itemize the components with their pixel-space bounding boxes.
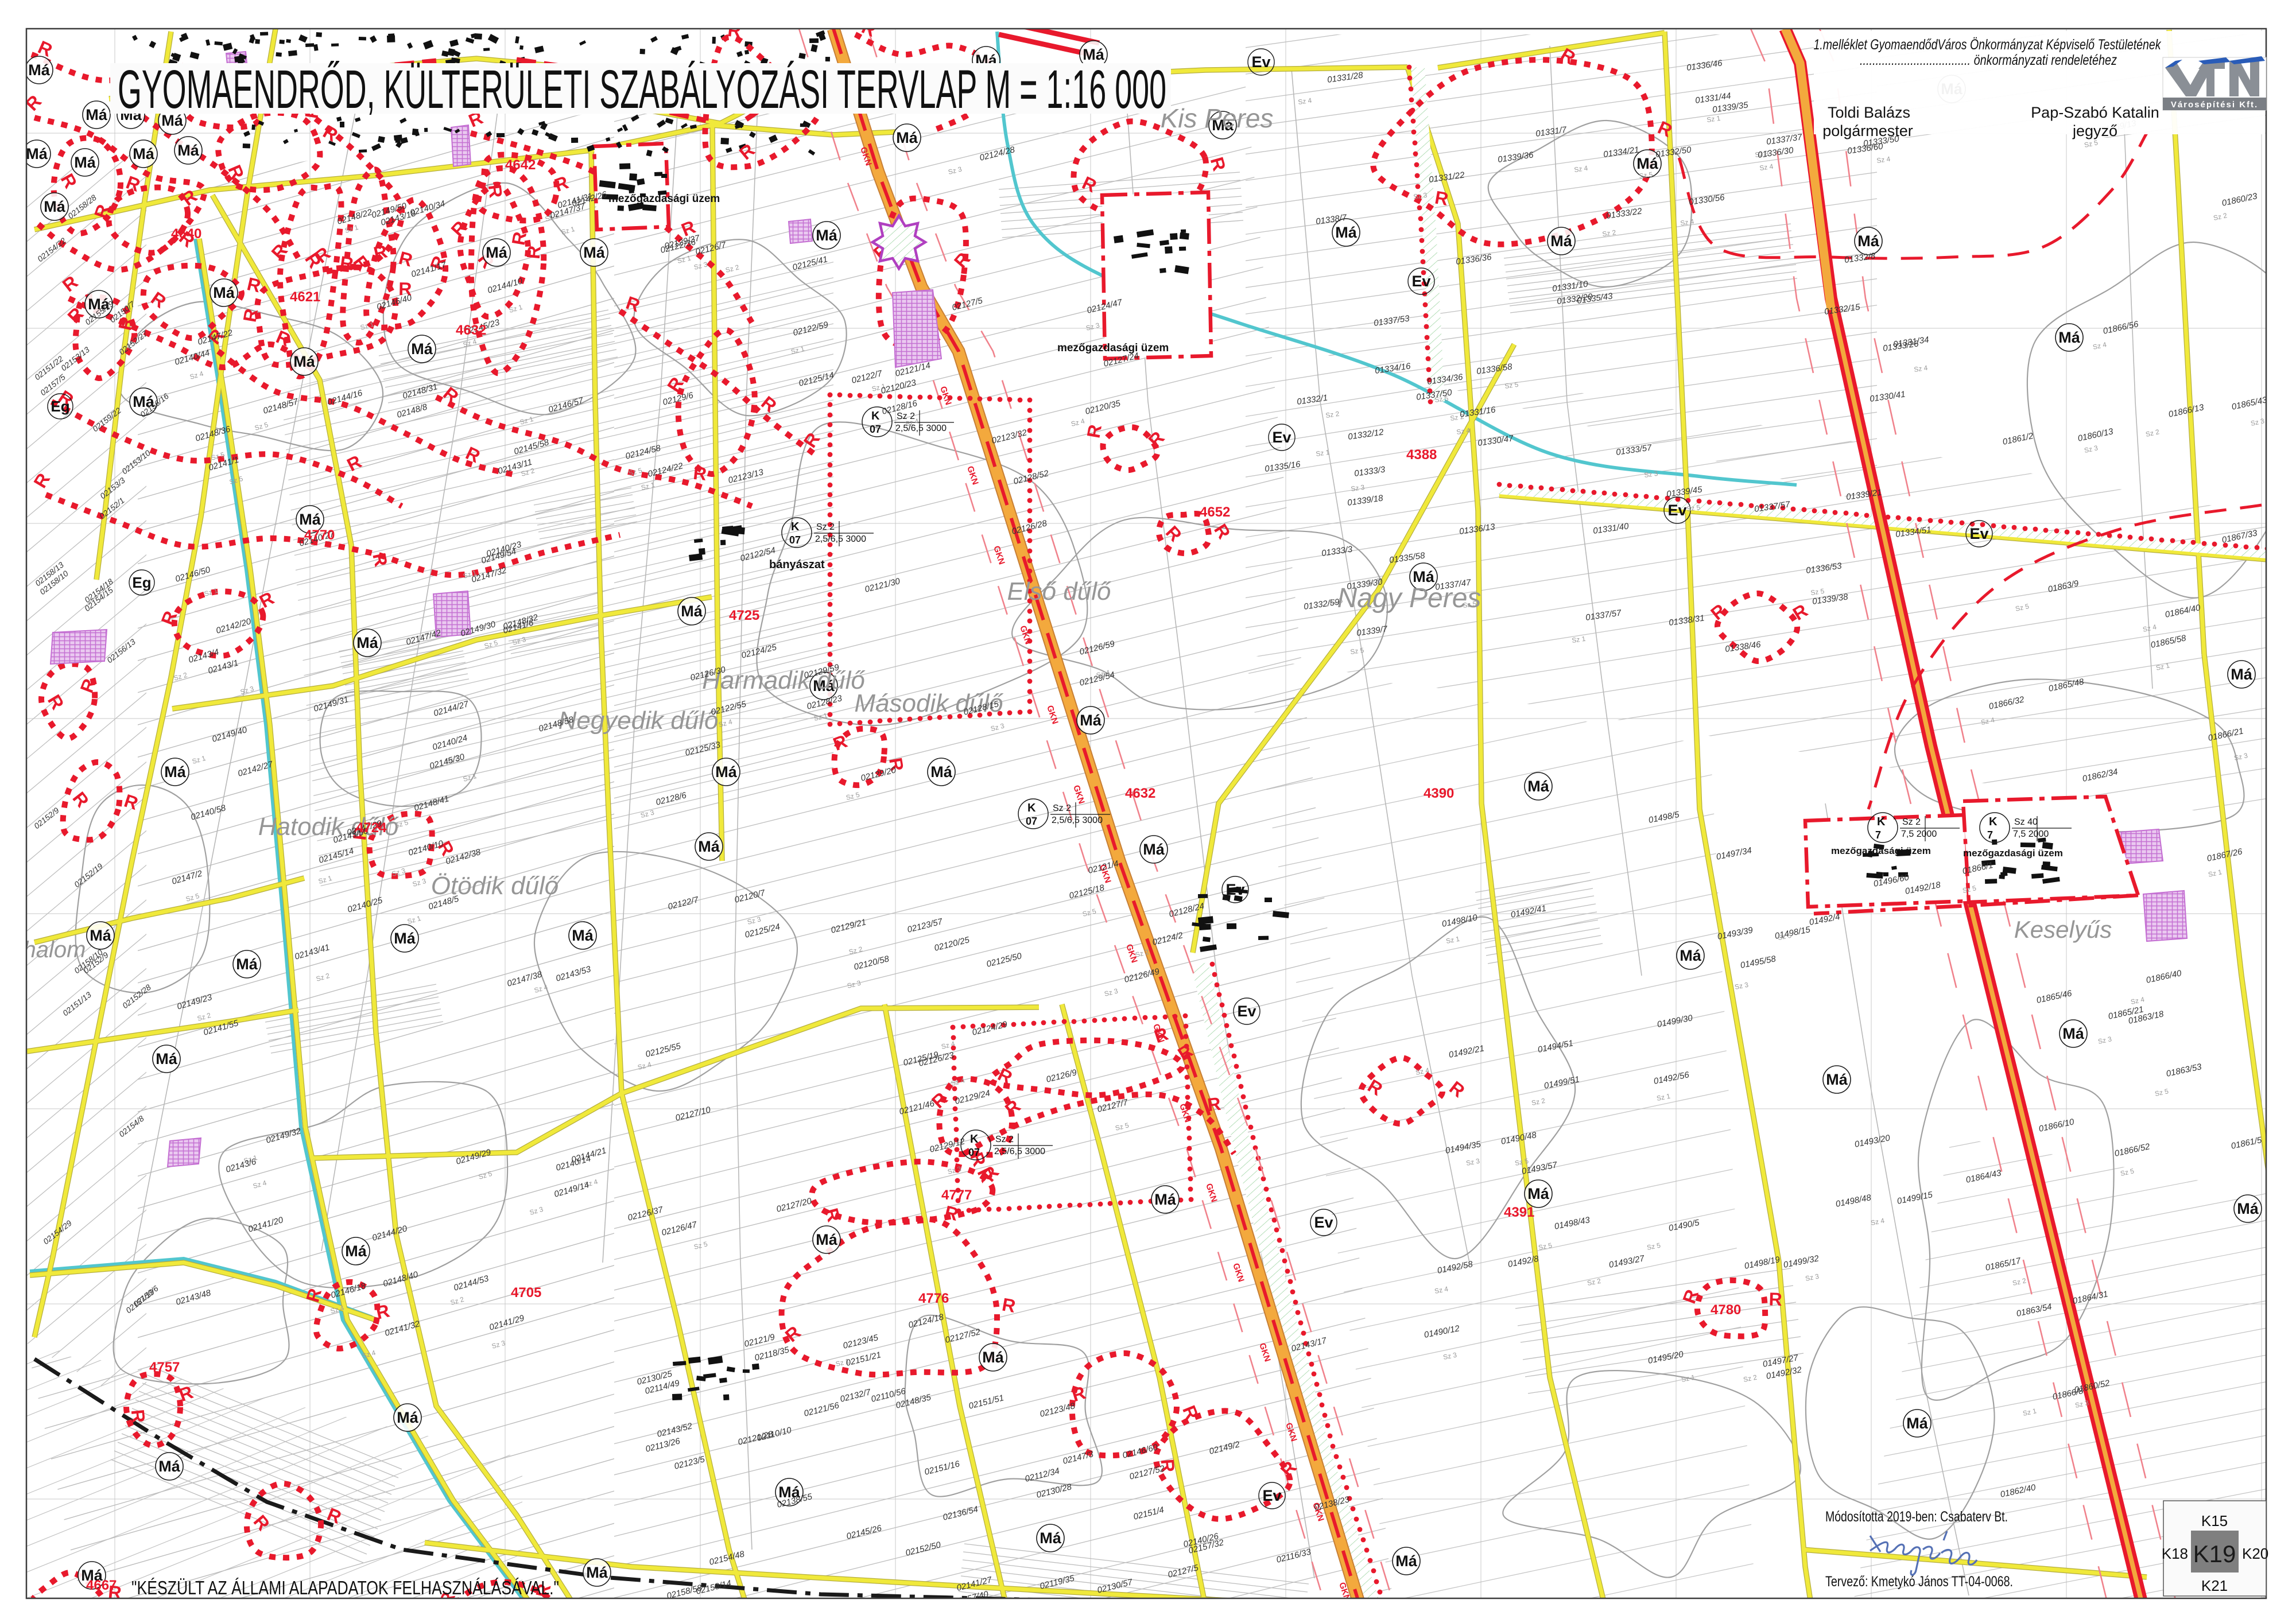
svg-text:Má: Má (86, 106, 107, 123)
svg-text:Ev: Ev (1225, 881, 1244, 898)
svg-text:K: K (1027, 802, 1036, 814)
svg-text:K15: K15 (2201, 1512, 2228, 1529)
svg-text:R: R (1206, 1093, 1221, 1116)
svg-text:Má: Má (44, 198, 65, 215)
svg-text:Má: Má (1154, 1191, 1176, 1208)
svg-text:Má: Má (681, 603, 703, 620)
svg-text:Ev: Ev (1272, 429, 1291, 446)
svg-text:4757: 4757 (149, 1360, 180, 1375)
svg-text:Má: Má (1527, 778, 1549, 795)
svg-text:jegyző: jegyző (2072, 122, 2117, 139)
svg-text:Ev: Ev (1314, 1214, 1333, 1231)
svg-text:Keselyűs: Keselyűs (2014, 916, 2112, 943)
svg-text:K21: K21 (2201, 1577, 2228, 1594)
svg-text:Má: Má (896, 129, 918, 146)
svg-text:Má: Má (411, 340, 433, 358)
svg-text:Má: Má (715, 763, 737, 781)
svg-text:07: 07 (968, 1147, 980, 1158)
svg-text:4390: 4390 (1424, 786, 1454, 801)
svg-text:7,5 2000: 7,5 2000 (2013, 829, 2049, 839)
svg-text:4776: 4776 (918, 1291, 949, 1306)
svg-text:Má: Má (1335, 224, 1357, 241)
svg-text:Má: Má (816, 227, 837, 244)
svg-text:Má: Má (299, 511, 321, 528)
svg-text:Má: Má (486, 244, 507, 261)
svg-text:mezőgazdasági üzem: mezőgazdasági üzem (1831, 845, 1931, 856)
svg-text:Má: Má (164, 763, 186, 781)
svg-text:Eg: Eg (132, 574, 151, 591)
svg-text:R: R (692, 463, 708, 484)
svg-text:mezőgazdasági üzem: mezőgazdasági üzem (1963, 848, 2063, 859)
svg-text:2,5/6,5 3000: 2,5/6,5 3000 (895, 424, 947, 433)
svg-text:4652: 4652 (1200, 504, 1230, 520)
svg-text:Má: Má (26, 145, 48, 162)
svg-text:Má: Má (74, 154, 96, 171)
svg-text:7: 7 (1875, 829, 1881, 841)
svg-text:Má: Má (586, 1564, 608, 1581)
svg-text:Má: Má (572, 927, 594, 944)
svg-text:R: R (127, 1408, 149, 1424)
svg-text:Má: Má (982, 1349, 1004, 1366)
svg-text:Ev: Ev (1251, 53, 1270, 71)
svg-text:K18: K18 (2162, 1545, 2188, 1562)
svg-text:Má: Má (930, 763, 952, 781)
svg-text:Má: Má (1906, 1415, 1928, 1432)
svg-text:K: K (1989, 816, 1998, 828)
svg-text:7,5 2000: 7,5 2000 (1901, 829, 1937, 839)
svg-text:Má: Má (1040, 1529, 1061, 1547)
svg-text:4724: 4724 (356, 820, 387, 836)
svg-text:Má: Má (583, 244, 605, 261)
svg-text:Má: Má (213, 284, 235, 301)
svg-text:Má: Má (1636, 155, 1658, 172)
svg-text:halom: halom (24, 937, 86, 962)
svg-text:07: 07 (789, 534, 801, 546)
svg-text:4632: 4632 (1125, 786, 1155, 801)
svg-text:4640: 4640 (171, 226, 201, 242)
svg-text:Módosította 2019-ben: Csabater: Módosította 2019-ben: Csabaterv Bt. (1825, 1509, 2008, 1525)
svg-text:K: K (871, 410, 880, 422)
svg-text:Má: Má (2058, 329, 2080, 346)
svg-text:4777: 4777 (941, 1187, 972, 1203)
svg-text:Má: Má (1550, 232, 1572, 250)
svg-text:4391: 4391 (1504, 1205, 1534, 1220)
svg-text:R: R (523, 244, 545, 260)
svg-text:Má: Má (816, 1231, 837, 1248)
svg-text:Sz 2: Sz 2 (816, 522, 835, 532)
svg-text:Ev: Ev (1411, 273, 1430, 290)
svg-text:Má: Má (90, 927, 111, 944)
svg-text:bányászat: bányászat (769, 558, 825, 571)
svg-text:Má: Má (293, 353, 315, 370)
svg-text:mezőgazdasági üzem: mezőgazdasági üzem (608, 193, 720, 205)
svg-text:4388: 4388 (1406, 447, 1437, 463)
svg-text:Má: Má (133, 145, 154, 162)
svg-text:Ev: Ev (1262, 1487, 1281, 1504)
svg-text:Má: Má (1395, 1552, 1417, 1570)
svg-text:K20: K20 (2242, 1545, 2268, 1562)
svg-text:Sz 40: Sz 40 (2014, 817, 2038, 827)
svg-text:Má: Má (177, 142, 199, 159)
svg-text:Első dűlő: Első dűlő (1007, 577, 1111, 605)
svg-text:Má: Má (1857, 232, 1879, 250)
svg-text:4621: 4621 (290, 289, 320, 305)
svg-text:Sz 2: Sz 2 (1902, 817, 1921, 827)
svg-text:Toldi Balázs: Toldi Balázs (1828, 104, 1910, 121)
svg-text:Harmadik dűlő: Harmadik dűlő (702, 666, 865, 694)
svg-text:Má: Má (345, 1243, 367, 1260)
svg-text:4642: 4642 (505, 157, 536, 173)
svg-text:Negyedik dűlő: Negyedik dűlő (559, 706, 719, 735)
svg-text:Má: Má (1527, 1185, 1549, 1202)
svg-text:..............................: ................................... önko… (1860, 52, 2117, 68)
svg-text:Má: Má (2237, 1200, 2259, 1217)
svg-text:4705: 4705 (511, 1285, 541, 1300)
svg-text:R: R (1768, 1288, 1782, 1310)
svg-text:2,5/6,5 3000: 2,5/6,5 3000 (1052, 816, 1103, 825)
svg-text:1.melléklet GyomaendődVáros Ön: 1.melléklet GyomaendődVáros Önkormányzat… (1814, 37, 2162, 53)
svg-text:Kis Peres: Kis Peres (1161, 103, 1274, 133)
svg-text:Városépítési Kft.: Városépítési Kft. (2171, 100, 2258, 110)
svg-text:2,5/6,5 3000: 2,5/6,5 3000 (994, 1147, 1045, 1156)
svg-text:4667: 4667 (86, 1578, 117, 1593)
svg-text:Má: Má (397, 1409, 418, 1426)
svg-text:Má: Má (394, 930, 416, 947)
svg-text:Ev: Ev (1667, 502, 1686, 519)
svg-text:4780: 4780 (1711, 1302, 1741, 1318)
svg-text:polgármester: polgármester (1822, 122, 1913, 139)
svg-text:7: 7 (1987, 829, 1993, 841)
svg-text:Sz 2: Sz 2 (995, 1135, 1014, 1144)
svg-text:Má: Má (28, 61, 50, 79)
svg-text:Má: Má (2062, 1025, 2084, 1042)
svg-text:Má: Má (1080, 712, 1102, 729)
svg-text:Tervező: Kmetykó János TT-04-0: Tervező: Kmetykó János TT-04-0068. (1825, 1574, 2013, 1590)
svg-text:"KÉSZÜLT AZ ÁLLAMI ALAPADATOK: "KÉSZÜLT AZ ÁLLAMI ALAPADATOK FELHASZNÁL… (131, 1577, 559, 1598)
svg-text:Má: Má (1143, 841, 1165, 858)
svg-text:Má: Má (236, 956, 258, 973)
svg-text:Eg: Eg (51, 398, 69, 415)
svg-text:4725: 4725 (729, 608, 759, 623)
svg-text:Má: Má (356, 634, 378, 651)
svg-text:Má: Má (158, 1458, 180, 1475)
svg-text:Pap-Szabó Katalin: Pap-Szabó Katalin (2031, 104, 2159, 121)
svg-text:07: 07 (1026, 816, 1037, 827)
svg-text:4632: 4632 (456, 323, 486, 338)
svg-text:K19: K19 (2193, 1540, 2236, 1567)
svg-text:07: 07 (870, 424, 881, 435)
svg-text:Ev: Ev (1969, 525, 1988, 542)
svg-text:Má: Má (156, 1050, 177, 1067)
svg-text:R: R (484, 183, 507, 199)
svg-text:Ev: Ev (1237, 1003, 1256, 1020)
svg-text:2,5/6,5 3000: 2,5/6,5 3000 (815, 534, 866, 544)
svg-text:Sz 2: Sz 2 (1053, 803, 1071, 813)
svg-text:Má: Má (1680, 947, 1701, 964)
svg-text:K: K (970, 1133, 979, 1146)
svg-text:Má: Má (1826, 1071, 1848, 1088)
svg-text:mezőgazdasági üzem: mezőgazdasági üzem (1057, 342, 1169, 354)
svg-text:4770: 4770 (304, 527, 335, 543)
svg-text:Má: Má (698, 838, 720, 855)
svg-text:Má: Má (2231, 666, 2252, 683)
svg-text:K: K (791, 521, 800, 533)
svg-text:GYOMAENDRŐD, KÜLTERÜLETI SZABÁ: GYOMAENDRŐD, KÜLTERÜLETI SZABÁLYOZÁSI TE… (118, 59, 1166, 120)
svg-text:K: K (1877, 816, 1886, 828)
